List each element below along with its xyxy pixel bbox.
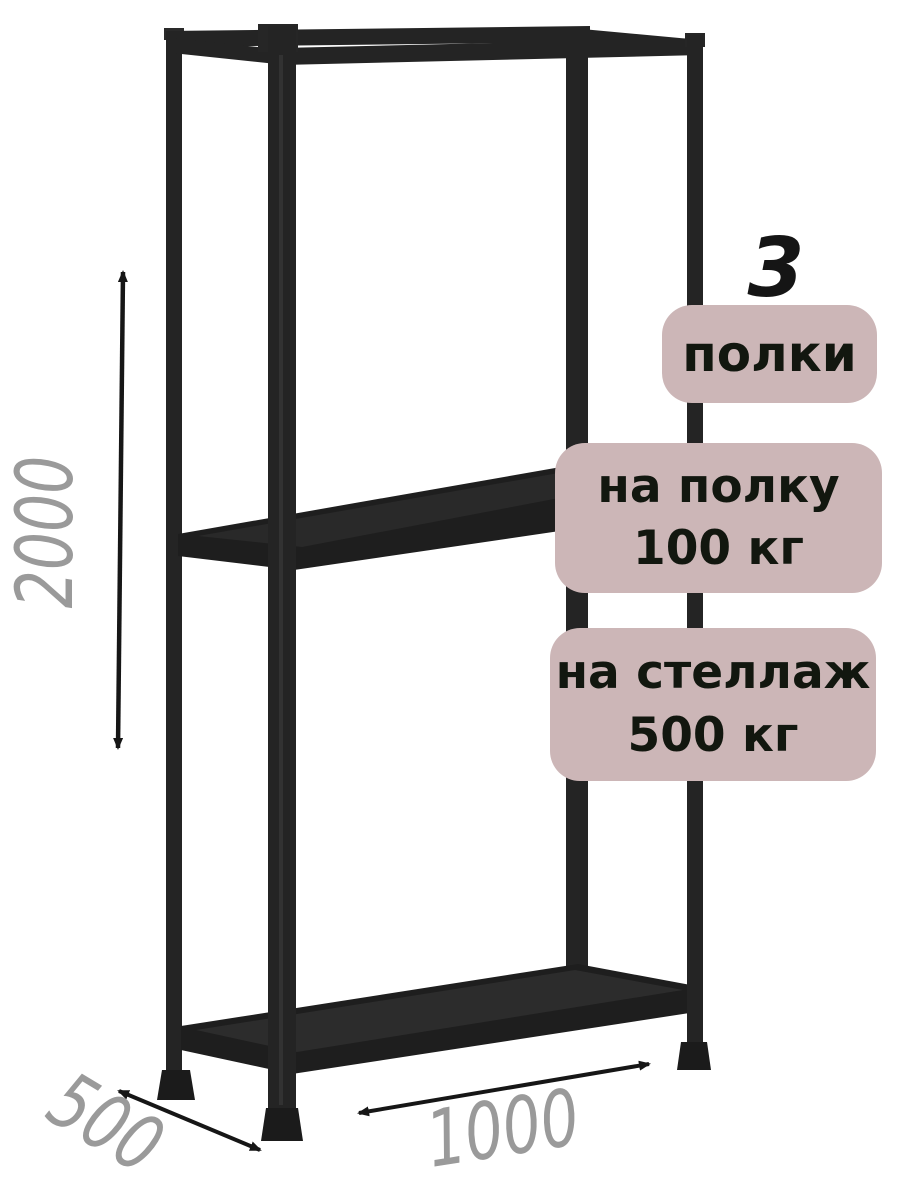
per-rack-load-badge: на стеллаж 500 кг bbox=[550, 628, 876, 781]
per-shelf-load-line1: на полку bbox=[597, 456, 839, 518]
rack-illustration: 2000 500 1000 bbox=[0, 0, 900, 1200]
per-rack-load-line2: 500 кг bbox=[556, 705, 871, 767]
per-rack-load-line1: на стеллаж bbox=[556, 642, 871, 704]
height-dimension-arrow bbox=[118, 272, 123, 748]
bottom-shelf bbox=[181, 964, 696, 1074]
shelf-count-badge-label: полки bbox=[682, 325, 857, 383]
per-shelf-load-line2: 100 кг bbox=[597, 518, 839, 580]
product-image: 2000 500 1000 3 полки на полку 100 кг на… bbox=[0, 0, 900, 1200]
per-shelf-load-badge: на полку 100 кг bbox=[555, 443, 882, 593]
width-dimension-label: 1000 bbox=[420, 1072, 585, 1186]
shelf-count-badge: полки bbox=[662, 305, 877, 403]
rack-post-front-left bbox=[258, 24, 298, 1114]
height-dimension-label: 2000 bbox=[0, 456, 91, 609]
shelf-count-number: 3 bbox=[728, 228, 824, 310]
depth-dimension-label: 500 bbox=[33, 1055, 178, 1192]
